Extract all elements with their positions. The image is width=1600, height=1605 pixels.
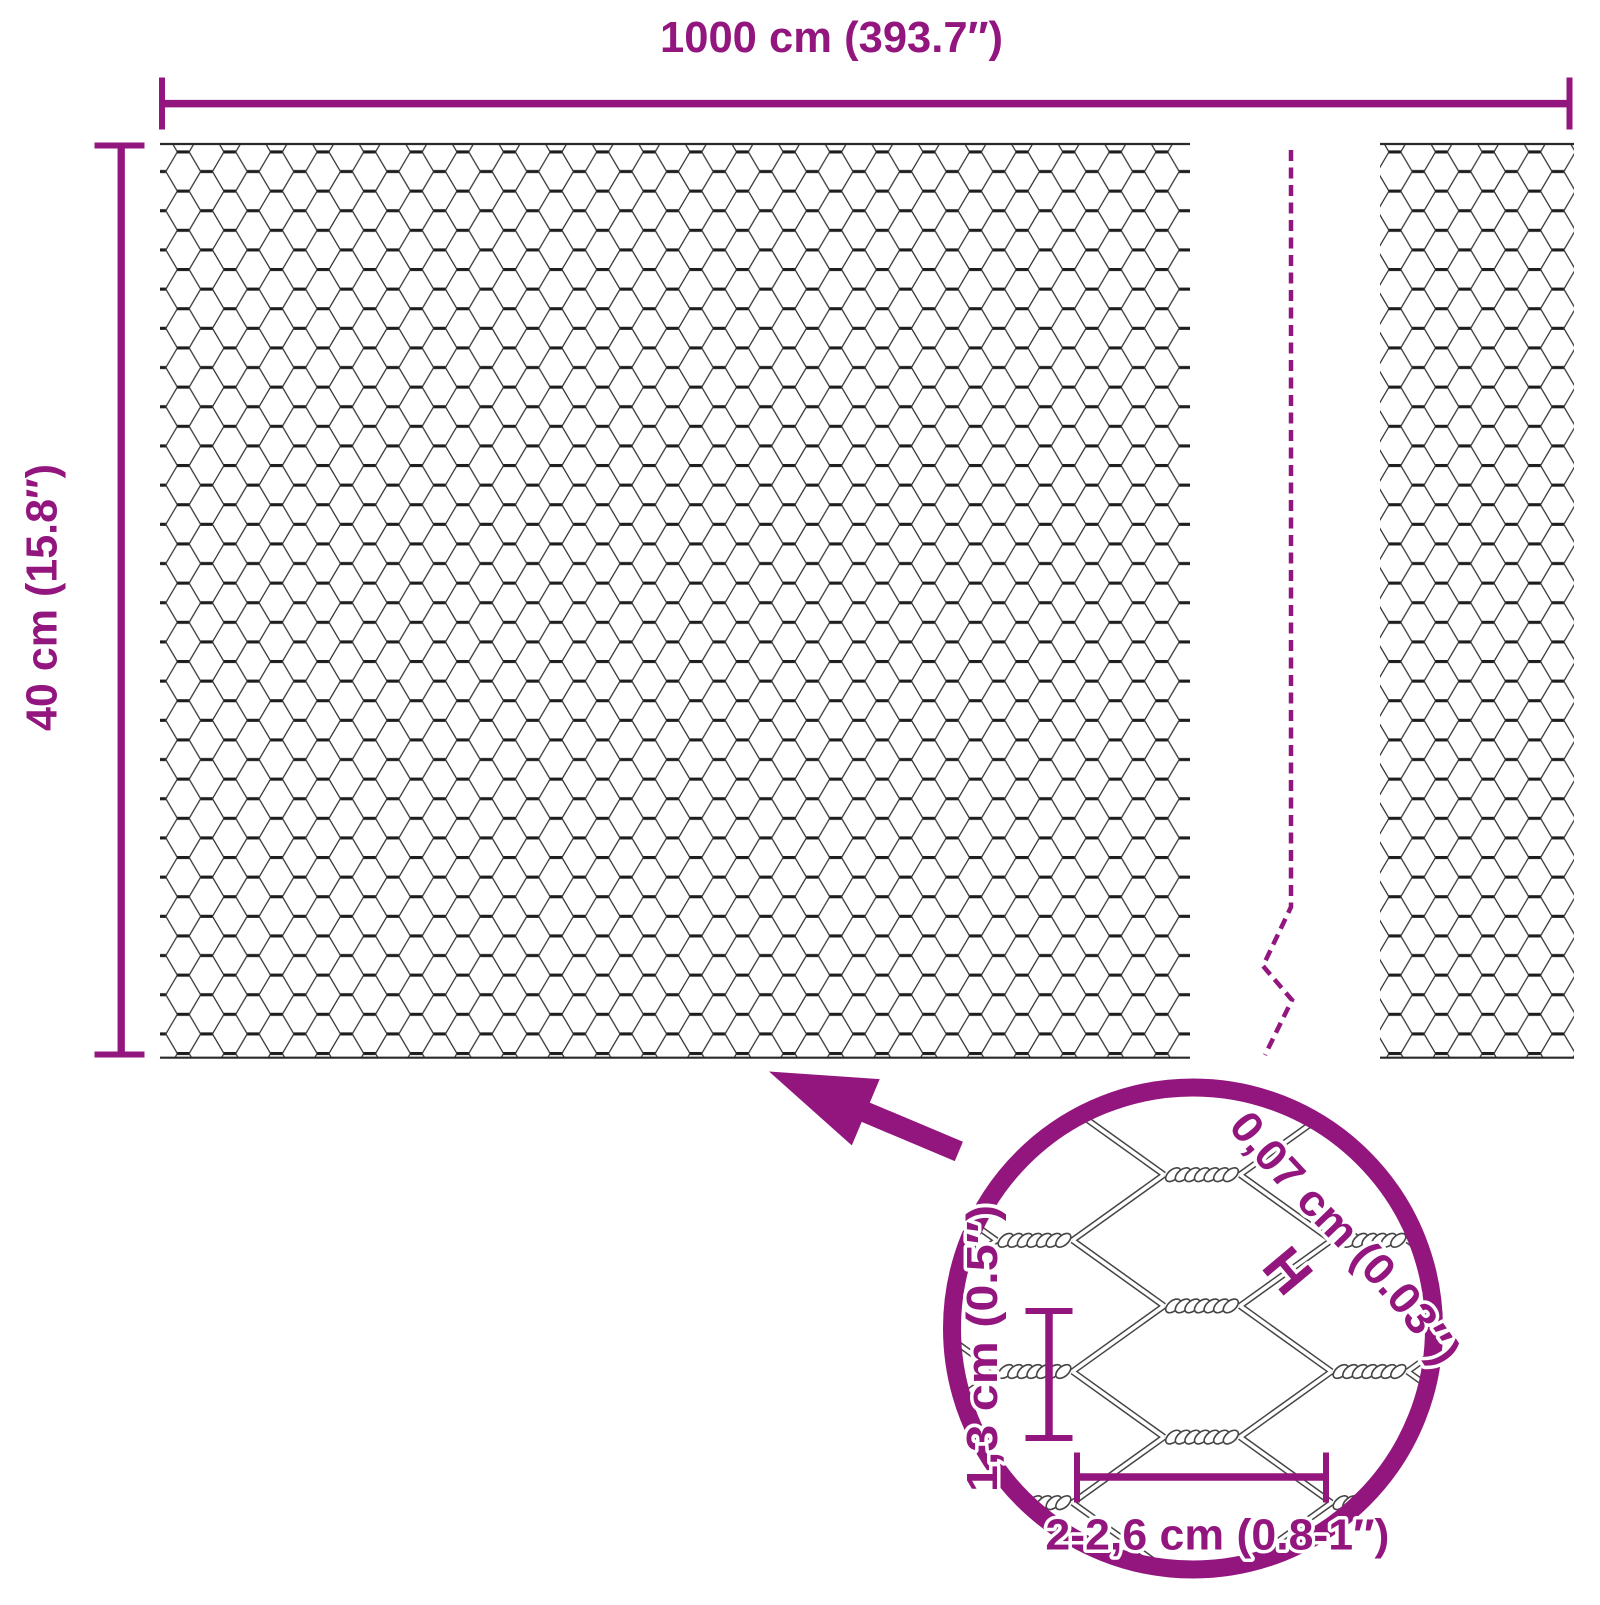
svg-text:2-2,6 cm (0.8-1″): 2-2,6 cm (0.8-1″)	[1045, 1510, 1389, 1559]
svg-text:1,3 cm (0.5″): 1,3 cm (0.5″)	[958, 1205, 1007, 1492]
svg-text:1000 cm (393.7″): 1000 cm (393.7″)	[660, 14, 1003, 62]
svg-text:40 cm (15.8″): 40 cm (15.8″)	[19, 464, 67, 731]
